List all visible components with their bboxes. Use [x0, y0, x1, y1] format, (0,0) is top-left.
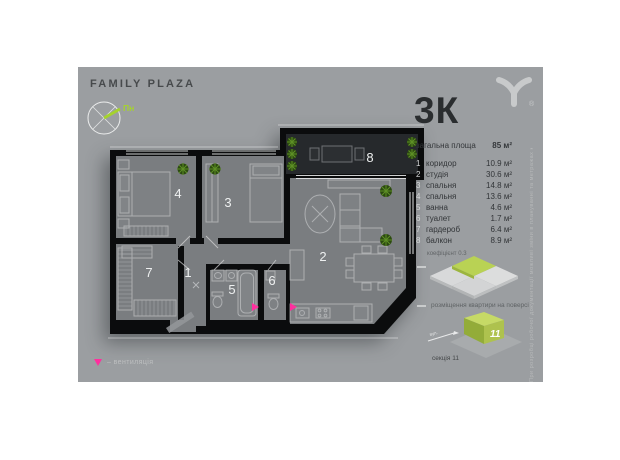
room-index: 4 — [416, 191, 426, 202]
street-arrow-icon — [453, 331, 459, 335]
floor-plan: 1 2 3 4 5 6 7 8 — [100, 120, 440, 365]
room-area: 13.6 м² — [486, 191, 512, 202]
room-corridor-floor — [184, 244, 206, 326]
room-name: студія — [426, 169, 448, 180]
room-index: 2 — [416, 169, 426, 180]
total-area-value: 85 м² — [492, 141, 512, 150]
plan-room-number-4: 4 — [174, 186, 181, 201]
room-name: спальня — [426, 191, 456, 202]
room-area: 1.7 м² — [490, 213, 512, 224]
ventilation-legend: – вентиляція — [94, 359, 153, 366]
grey-panel: FAMILY PLAZA Пн — [78, 67, 543, 382]
street-label: вул. — [429, 330, 438, 337]
room-index: 3 — [416, 180, 426, 191]
room-area: 30.6 м² — [486, 169, 512, 180]
room-name: балкон — [426, 235, 452, 246]
apartment-type: 3К — [414, 92, 459, 129]
room-row: 1коридор10.9 м² — [416, 158, 512, 169]
room-row: 3спальня14.8 м² — [416, 180, 512, 191]
room-name: коридор — [426, 158, 457, 169]
total-area-row: загальна площа 85 м² — [416, 141, 512, 150]
north-label: Пн — [123, 103, 134, 113]
room-name: ванна — [426, 202, 448, 213]
room-name: спальня — [426, 180, 456, 191]
brand-title: FAMILY PLAZA — [90, 78, 195, 90]
plan-room-number-2: 2 — [319, 249, 326, 264]
section-number: 11 — [490, 329, 501, 340]
divider-dash — [417, 305, 426, 307]
floor-plan-card: FAMILY PLAZA Пн — [0, 0, 620, 460]
room-row: 7гардероб6.4 м² — [416, 224, 512, 235]
section-label: секція 11 — [432, 355, 459, 362]
section-building-icon: 11 вул. — [424, 312, 536, 358]
floor-position-map — [424, 254, 520, 304]
plan-room-number-6: 6 — [268, 273, 275, 288]
room-area: 10.9 м² — [486, 158, 512, 169]
registered-mark: ® — [529, 100, 535, 108]
room-row: 8балкон8.9 м² — [416, 235, 512, 246]
room-area: 6.4 м² — [490, 224, 512, 235]
total-area-label: загальна площа — [416, 141, 476, 150]
plan-room-number-8: 8 — [366, 150, 373, 165]
floor-map-caption: розміщення квартири на поверсі — [431, 302, 529, 309]
room-index: 5 — [416, 202, 426, 213]
room-name: гардероб — [426, 224, 460, 235]
room-index: 1 — [416, 158, 426, 169]
room-area: 4.6 м² — [490, 202, 512, 213]
room-row: 2студія30.6 м² — [416, 169, 512, 180]
plan-room-number-7: 7 — [145, 265, 152, 280]
disclaimer-text: При розробці робочої документації можлив… — [529, 148, 538, 382]
room-row: 4спальня13.6 м² — [416, 191, 512, 202]
room-index: 7 — [416, 224, 426, 235]
pink-triangle-icon — [94, 359, 102, 366]
plan-room-number-3: 3 — [224, 195, 231, 210]
room-index: 8 — [416, 235, 426, 246]
room-row: 6туалет1.7 м² — [416, 213, 512, 224]
room-list: 1коридор10.9 м² 2студія30.6 м² 3спальня1… — [416, 158, 512, 246]
plan-room-number-5: 5 — [228, 282, 235, 297]
y-fork-logo-icon: ® — [493, 75, 535, 109]
ventilation-legend-text: – вентиляція — [107, 359, 153, 366]
plan-room-number-1: 1 — [184, 265, 191, 280]
room-name: туалет — [426, 213, 451, 224]
room-index: 6 — [416, 213, 426, 224]
room-row: 5ванна4.6 м² — [416, 202, 512, 213]
room-area: 8.9 м² — [490, 235, 512, 246]
room-area: 14.8 м² — [486, 180, 512, 191]
